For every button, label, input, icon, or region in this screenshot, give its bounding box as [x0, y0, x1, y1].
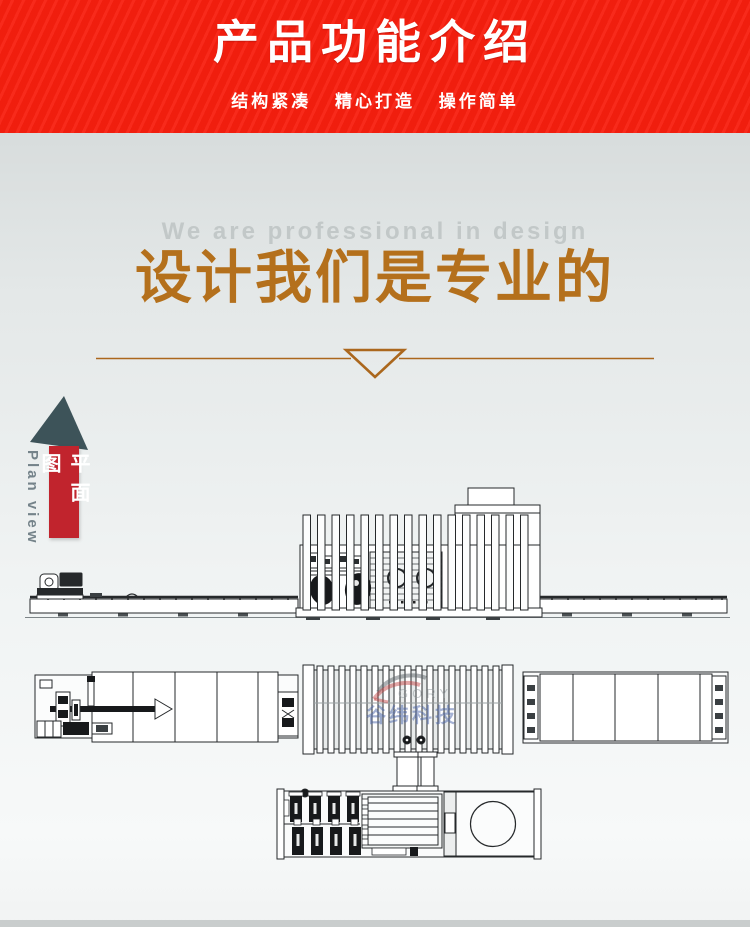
- banner: 产品功能介绍 结构紧凑 精心打造 操作简单: [0, 0, 750, 133]
- watermark-zh: 谷纬科技: [366, 703, 458, 727]
- hero-subtitle-en: We are professional in design: [0, 218, 750, 246]
- watermark-latin: GORY: [398, 686, 452, 701]
- technical-drawings: GORY 谷纬科技: [0, 470, 750, 900]
- banner-title: 产品功能介绍: [0, 16, 750, 68]
- down-triangle-icon: [346, 350, 404, 377]
- product-detail-page: 产品功能介绍 结构紧凑 精心打造 操作简单 We are professiona…: [0, 0, 750, 927]
- banner-subtitle: 结构紧凑 精心打造 操作简单: [0, 87, 750, 112]
- footer-strip: [0, 920, 750, 927]
- section-divider: [90, 342, 660, 386]
- hero-title-zh: 设计我们是专业的: [0, 244, 750, 312]
